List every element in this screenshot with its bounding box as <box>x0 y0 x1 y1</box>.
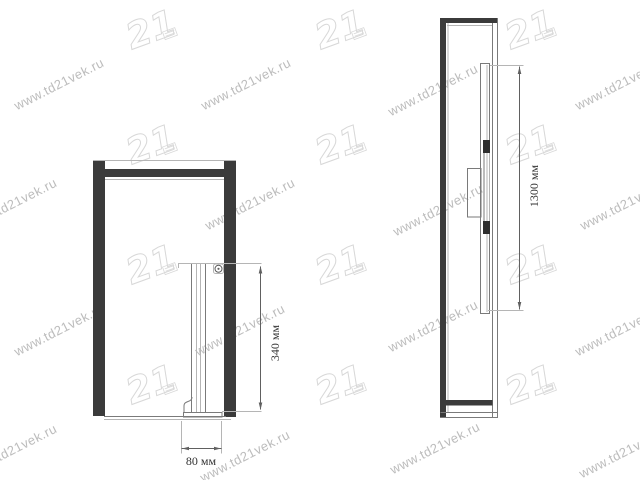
side-bottom-bar <box>443 400 493 406</box>
lift-rail-body <box>192 264 206 413</box>
mounting-bracket <box>468 169 482 218</box>
lift-rail-side <box>481 64 490 314</box>
dim1300-arrow-down <box>518 302 522 310</box>
front-right-post <box>224 161 236 417</box>
front-left-post <box>93 161 105 416</box>
drawing-canvas: 21 21 21 <box>0 0 640 480</box>
lift-rail-front <box>184 264 224 418</box>
screw-center-dot <box>217 268 219 270</box>
side-left-bar <box>440 18 446 417</box>
technical-drawing <box>0 0 640 480</box>
dim340-arrow-down <box>259 403 263 411</box>
dim1300-arrow-up <box>518 67 522 75</box>
side-top-bar <box>440 18 497 23</box>
front-top-rail <box>104 169 225 177</box>
dimension-label-1300: 1300 мм <box>527 163 541 209</box>
dim80-arrow-right <box>214 447 221 451</box>
dimension-1300 <box>488 66 524 311</box>
bottom-hook <box>184 397 192 413</box>
dim80-arrow-left <box>182 447 189 451</box>
carriage-top-block <box>483 140 490 153</box>
dimension-80 <box>182 421 222 454</box>
carriage-bottom-block <box>483 221 490 234</box>
dimension-label-340: 340 мм <box>268 323 282 363</box>
dimension-340 <box>178 264 262 412</box>
dimension-label-80: 80 мм <box>184 454 218 468</box>
dim340-arrow-up <box>259 266 263 274</box>
side-panel-outline <box>441 19 498 418</box>
side-view <box>440 18 524 418</box>
front-view <box>93 161 262 454</box>
